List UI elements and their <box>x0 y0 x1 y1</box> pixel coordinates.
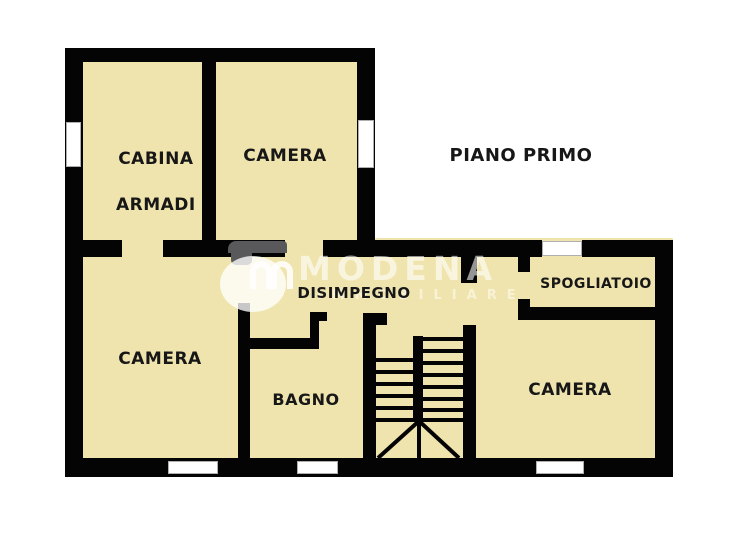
wall-camera-bagno <box>238 303 250 460</box>
wall-exterior-right <box>655 240 673 477</box>
watermark-logo-m-icon <box>250 261 272 289</box>
window-bottom-wall-2 <box>297 461 338 474</box>
room-label-camera-top: CAMERA <box>225 145 345 168</box>
wall-exterior-left <box>65 48 83 477</box>
room-label-camera-left: CAMERA <box>100 348 220 371</box>
floor-plan-canvas: MODENA IMMOBILIARE CABINA ARMADI CAMERA … <box>0 0 742 543</box>
window-top-wall-right-section <box>542 241 582 256</box>
wall-closet-divider <box>202 60 216 242</box>
window-bottom-wall-3 <box>536 461 584 474</box>
stair-direction-lines <box>363 310 476 470</box>
room-label-camera-right: CAMERA <box>510 379 630 402</box>
wall-spogliatoio-bottom <box>518 307 658 320</box>
window-bottom-wall-1 <box>168 461 218 474</box>
wall-spogliatoio-door-jamb-top <box>518 257 530 272</box>
watermark-brand: MODENA <box>298 252 498 285</box>
wall-bagno-door-jamb-cap <box>310 312 327 321</box>
floor-title: PIANO PRIMO <box>430 144 612 168</box>
room-label-spogliatoio: SPOGLIATOIO <box>536 275 656 294</box>
room-label-disimpegno: DISIMPEGNO <box>289 283 419 303</box>
cabina-armadi-line1: CABINA <box>118 149 193 169</box>
room-label-cabina-armadi: CABINA ARMADI <box>83 125 203 240</box>
wall-mid-band-seg1 <box>65 240 122 257</box>
window-upper-right-wall <box>358 120 374 168</box>
wall-exterior-top <box>65 48 375 62</box>
cabina-armadi-line2: ARMADI <box>116 195 196 215</box>
window-left-wall <box>66 122 81 167</box>
wall-bagno-top <box>250 338 311 349</box>
room-label-bagno: BAGNO <box>246 389 366 411</box>
